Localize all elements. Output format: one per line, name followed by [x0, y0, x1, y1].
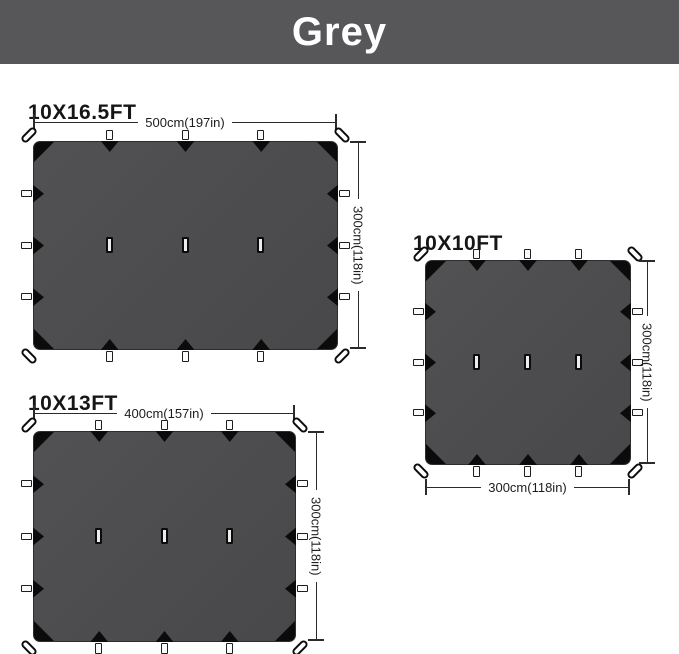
tie-tab — [226, 420, 233, 430]
tie-tab — [575, 249, 582, 259]
center-slit — [226, 528, 233, 544]
corner-reinforcement — [34, 142, 54, 162]
tie-tab — [339, 190, 350, 197]
tie-tab — [413, 308, 424, 315]
tie-tab — [226, 643, 233, 654]
tie-down-point — [221, 631, 239, 642]
tarp-illustration-10x13ft — [33, 431, 296, 642]
corner-loop — [20, 416, 38, 434]
tarp-size-diagram: Grey 10X16.5FT 500cm(197in) 300cm(118in)… — [0, 0, 679, 654]
tie-tab — [21, 585, 32, 592]
tie-tab — [473, 466, 480, 477]
tie-triangle — [327, 288, 338, 306]
tie-triangle — [620, 404, 631, 422]
height-dimension-label: 300cm(118in) — [352, 199, 365, 292]
center-slit — [182, 237, 189, 253]
tie-down-point — [468, 260, 486, 271]
corner-loop — [20, 639, 38, 654]
tarp-illustration-10x10ft — [425, 260, 631, 465]
corner-loop — [20, 126, 38, 144]
tie-down-point — [156, 431, 174, 442]
tie-triangle — [33, 528, 44, 546]
dimension-line — [35, 413, 117, 414]
tie-tab — [524, 466, 531, 477]
tie-down-point — [285, 528, 296, 546]
tie-tab — [257, 351, 264, 362]
tie-tab — [297, 533, 308, 540]
tie-down-point — [519, 454, 537, 465]
tie-down-point — [425, 354, 436, 372]
tie-tab — [339, 242, 350, 249]
dimension-line — [316, 433, 317, 490]
height-dimension-10x16-5ft: 300cm(118in) — [350, 141, 366, 349]
tie-tab — [413, 409, 424, 416]
tie-down-point — [425, 404, 436, 422]
tie-down-point — [327, 185, 338, 203]
tie-triangle — [468, 454, 486, 465]
tie-down-point — [33, 580, 44, 598]
tie-triangle — [519, 260, 537, 271]
height-dimension-label: 300cm(118in) — [310, 490, 323, 583]
corner-loop — [291, 639, 309, 654]
tie-tab — [473, 249, 480, 259]
tie-triangle — [156, 431, 174, 442]
corner-reinforcement — [275, 621, 295, 641]
width-dimension-10x16-5ft: 500cm(197in) — [33, 114, 337, 130]
tie-tab — [21, 293, 32, 300]
center-slit — [524, 354, 531, 370]
center-slit — [575, 354, 582, 370]
tie-triangle — [177, 141, 195, 152]
center-slit — [95, 528, 102, 544]
tie-triangle — [425, 354, 436, 372]
tie-triangle — [570, 260, 588, 271]
tie-triangle — [620, 354, 631, 372]
tie-down-point — [327, 288, 338, 306]
tie-down-point — [33, 288, 44, 306]
tie-down-point — [570, 454, 588, 465]
center-slit — [106, 237, 113, 253]
tie-down-point — [33, 237, 44, 255]
tie-triangle — [90, 431, 108, 442]
tie-triangle — [425, 404, 436, 422]
corner-reinforcement — [34, 621, 54, 641]
tie-down-point — [285, 580, 296, 598]
tie-down-point — [252, 141, 270, 152]
tie-tab — [21, 533, 32, 540]
tie-tab — [182, 351, 189, 362]
corner-reinforcement — [34, 329, 54, 349]
tie-triangle — [285, 475, 296, 493]
tie-triangle — [285, 528, 296, 546]
tie-tab — [182, 130, 189, 140]
dimension-line — [358, 143, 359, 199]
tie-triangle — [252, 141, 270, 152]
dimension-tick — [350, 347, 366, 349]
dimension-line — [647, 408, 648, 462]
corner-reinforcement — [426, 261, 446, 281]
tie-tab — [21, 242, 32, 249]
tie-down-point — [90, 631, 108, 642]
dimension-line — [647, 262, 648, 316]
tie-tab — [95, 420, 102, 430]
tie-tab — [106, 130, 113, 140]
tie-down-point — [570, 260, 588, 271]
tie-tab — [21, 190, 32, 197]
tie-triangle — [519, 454, 537, 465]
tie-tab — [575, 466, 582, 477]
tie-down-point — [156, 631, 174, 642]
tarp-illustration-10x16-5ft — [33, 141, 338, 350]
tie-triangle — [101, 141, 119, 152]
corner-reinforcement — [610, 444, 630, 464]
tie-triangle — [327, 185, 338, 203]
tie-tab — [257, 130, 264, 140]
tie-down-point — [33, 185, 44, 203]
tie-tab — [297, 480, 308, 487]
dimension-line — [211, 413, 293, 414]
dimension-line — [35, 122, 138, 123]
corner-loop — [20, 347, 38, 365]
tie-down-point — [519, 260, 537, 271]
center-slit — [161, 528, 168, 544]
tie-down-point — [177, 339, 195, 350]
center-slit — [257, 237, 264, 253]
tie-triangle — [156, 631, 174, 642]
tie-tab — [413, 359, 424, 366]
tie-down-point — [620, 404, 631, 422]
dimension-tick — [639, 462, 655, 464]
tie-tab — [106, 351, 113, 362]
dimension-line — [316, 582, 317, 639]
tie-triangle — [425, 303, 436, 321]
tie-triangle — [570, 454, 588, 465]
width-dimension-label: 500cm(197in) — [138, 116, 232, 129]
tie-triangle — [33, 237, 44, 255]
tie-triangle — [90, 631, 108, 642]
tie-down-point — [327, 237, 338, 255]
tie-triangle — [327, 237, 338, 255]
tie-tab — [161, 643, 168, 654]
height-dimension-label: 300cm(118in) — [641, 316, 654, 409]
dimension-line — [427, 487, 481, 488]
tie-triangle — [285, 580, 296, 598]
width-dimension-10x10ft: 300cm(118in) — [425, 479, 630, 495]
corner-reinforcement — [317, 329, 337, 349]
dimension-line — [232, 122, 335, 123]
tie-down-point — [177, 141, 195, 152]
width-dimension-label: 300cm(118in) — [481, 481, 574, 494]
tie-tab — [21, 480, 32, 487]
tie-down-point — [252, 339, 270, 350]
width-dimension-label: 400cm(157in) — [117, 407, 211, 420]
tie-triangle — [33, 185, 44, 203]
tie-tab — [297, 585, 308, 592]
dimension-line — [574, 487, 628, 488]
corner-loop — [626, 462, 644, 480]
dimension-line — [358, 291, 359, 347]
tie-down-point — [620, 354, 631, 372]
corner-reinforcement — [610, 261, 630, 281]
corner-loop — [333, 347, 351, 365]
tie-triangle — [468, 260, 486, 271]
tie-triangle — [221, 431, 239, 442]
height-dimension-10x13ft: 300cm(118in) — [308, 431, 324, 641]
tie-down-point — [101, 339, 119, 350]
tie-down-point — [425, 303, 436, 321]
width-dimension-10x13ft: 400cm(157in) — [33, 405, 295, 421]
tie-triangle — [33, 580, 44, 598]
corner-reinforcement — [34, 432, 54, 452]
tie-down-point — [285, 475, 296, 493]
tie-triangle — [101, 339, 119, 350]
color-banner-label: Grey — [292, 10, 387, 55]
tie-triangle — [33, 288, 44, 306]
corner-reinforcement — [317, 142, 337, 162]
tie-tab — [161, 420, 168, 430]
tie-tab — [339, 293, 350, 300]
tie-triangle — [252, 339, 270, 350]
tie-tab — [95, 643, 102, 654]
corner-reinforcement — [275, 432, 295, 452]
dimension-tick — [308, 639, 324, 641]
tie-down-point — [90, 431, 108, 442]
tie-triangle — [620, 303, 631, 321]
tie-tab — [524, 249, 531, 259]
corner-loop — [333, 126, 351, 144]
tie-triangle — [33, 475, 44, 493]
tie-down-point — [221, 431, 239, 442]
corner-loop — [412, 462, 430, 480]
corner-reinforcement — [426, 444, 446, 464]
color-banner: Grey — [0, 0, 679, 64]
center-slit — [473, 354, 480, 370]
tie-triangle — [177, 339, 195, 350]
corner-loop — [291, 416, 309, 434]
tie-down-point — [101, 141, 119, 152]
tie-down-point — [33, 475, 44, 493]
tie-down-point — [33, 528, 44, 546]
tie-down-point — [620, 303, 631, 321]
tie-triangle — [221, 631, 239, 642]
height-dimension-10x10ft: 300cm(118in) — [639, 260, 655, 464]
dimension-tick — [628, 479, 630, 495]
tie-down-point — [468, 454, 486, 465]
